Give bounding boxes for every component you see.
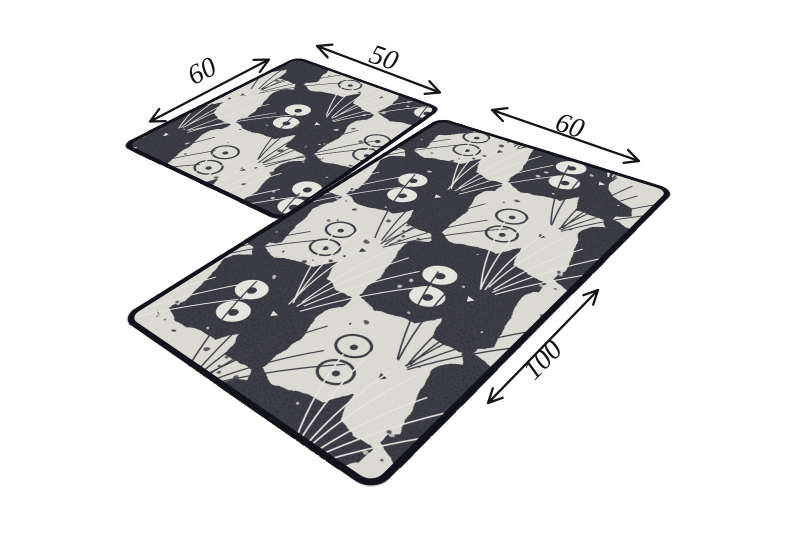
- svg-text:50: 50: [365, 39, 402, 77]
- svg-text:60: 60: [183, 51, 222, 91]
- svg-text:100: 100: [517, 334, 568, 386]
- svg-text:60: 60: [551, 107, 588, 145]
